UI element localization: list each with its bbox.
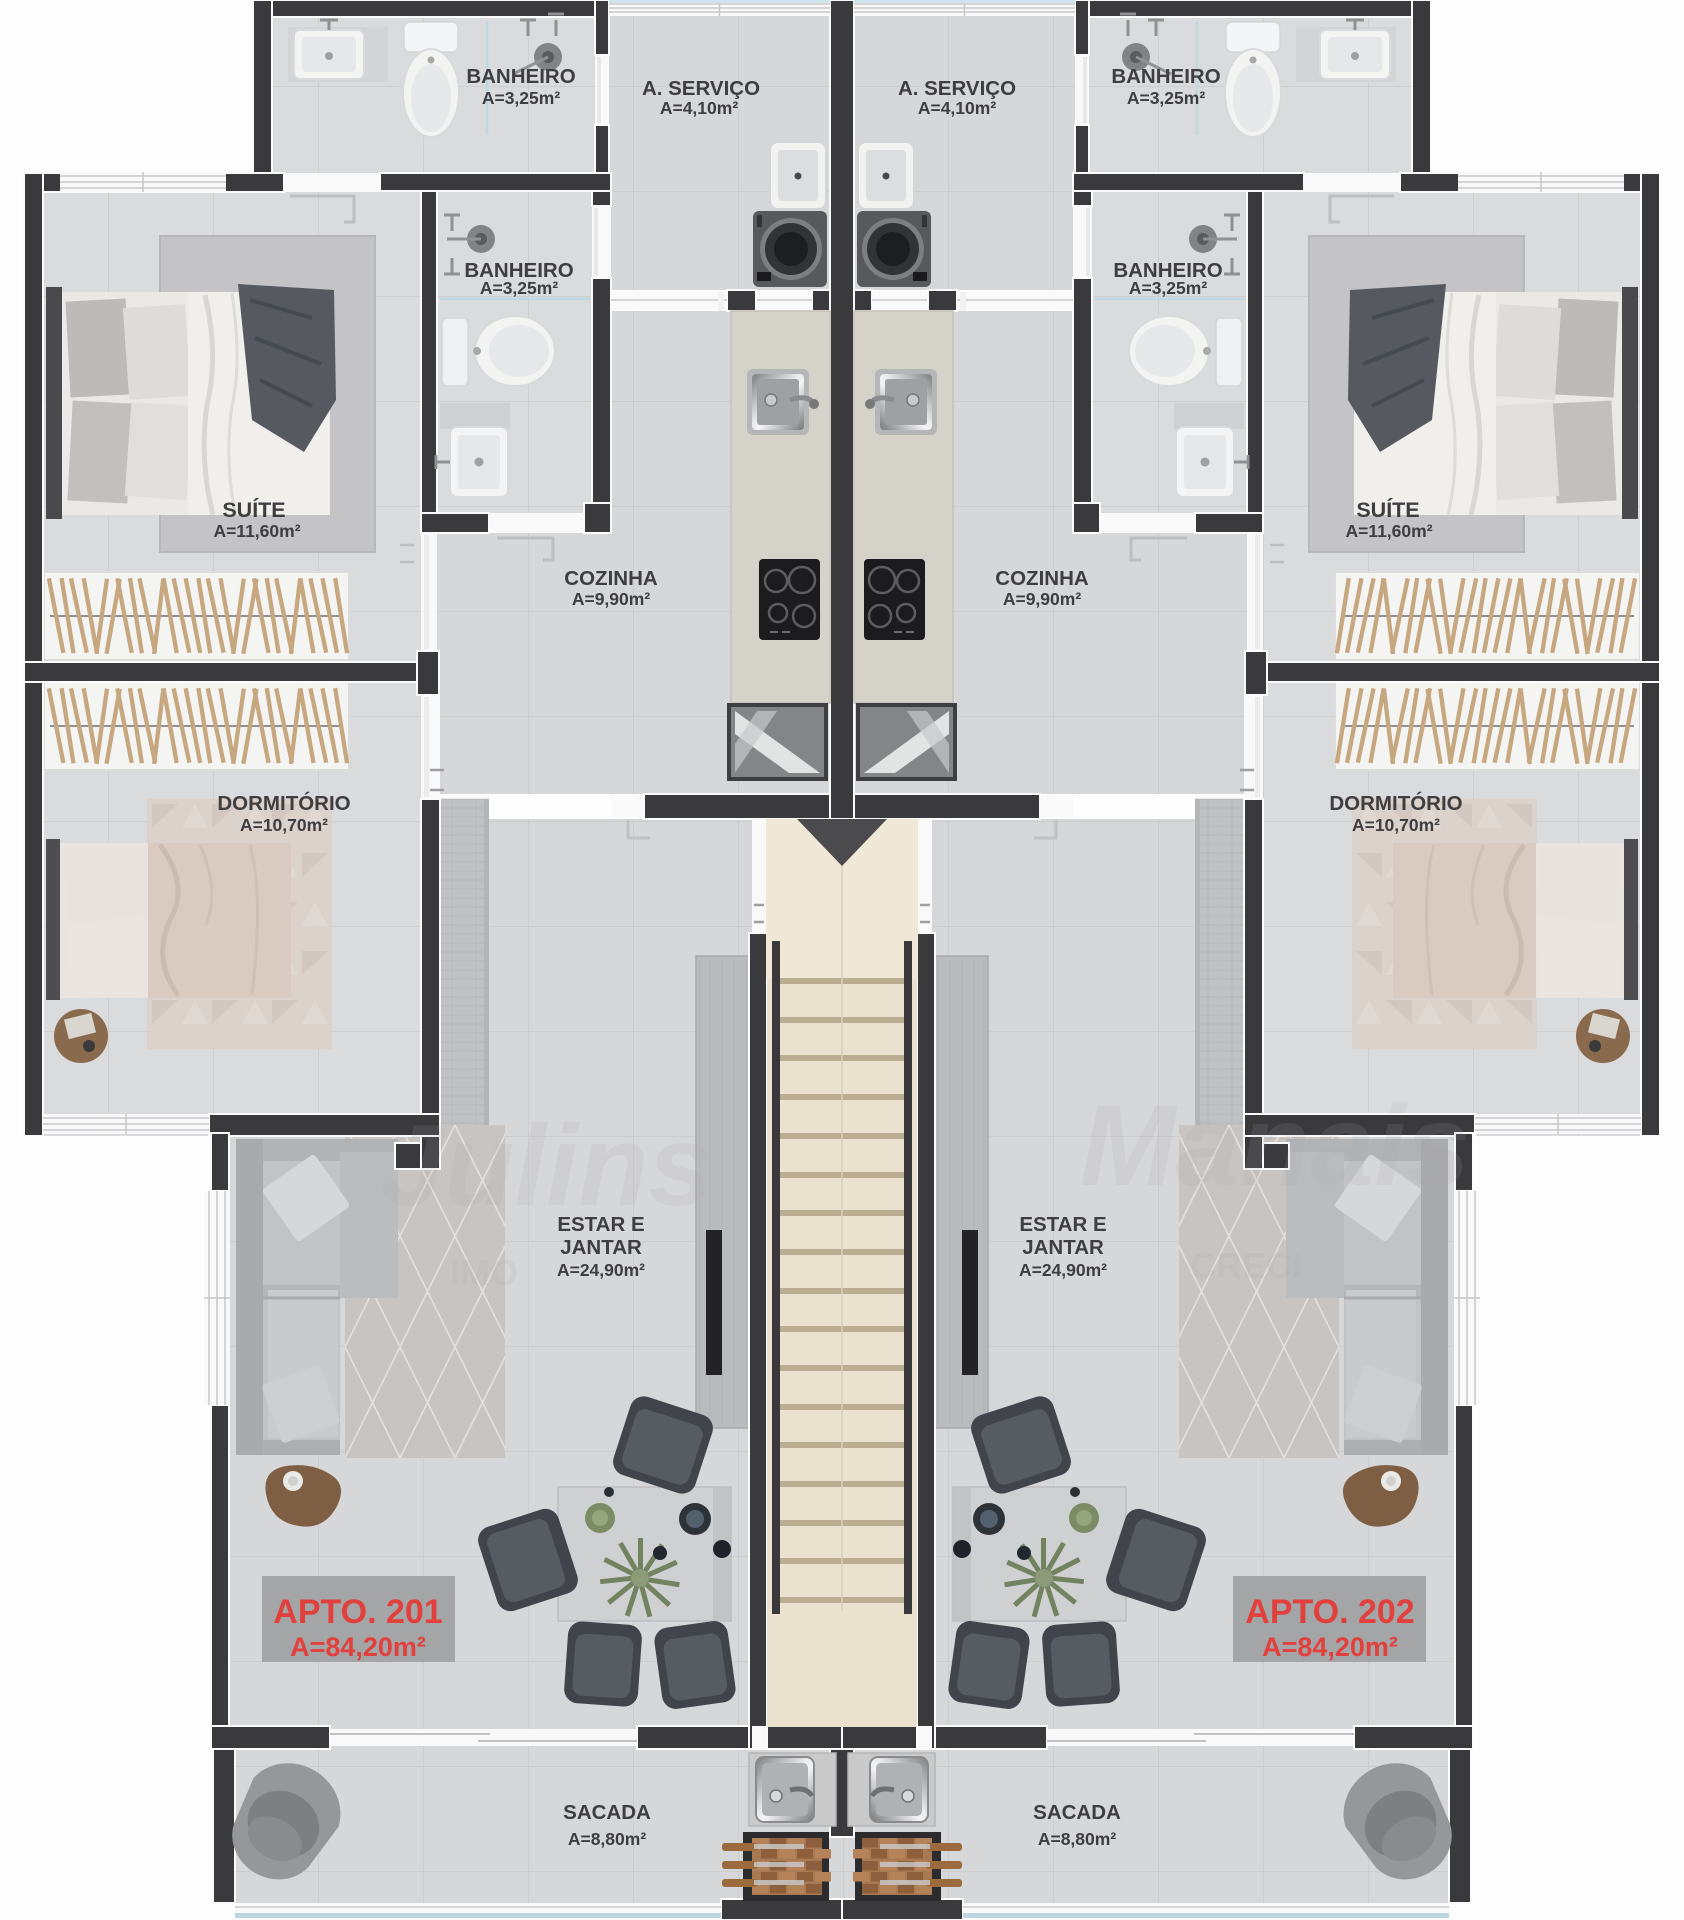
svg-text:A=3,25m²: A=3,25m² <box>1127 88 1205 108</box>
svg-text:A=9,90m²: A=9,90m² <box>1003 589 1081 609</box>
svg-text:A=10,70m²: A=10,70m² <box>1352 815 1440 835</box>
svg-text:A=84,20m²: A=84,20m² <box>290 1632 426 1662</box>
svg-text:A=84,20m²: A=84,20m² <box>1262 1632 1398 1662</box>
svg-text:DORMITÓRIO: DORMITÓRIO <box>1329 791 1462 815</box>
svg-text:Manais: Manais <box>1080 1082 1470 1210</box>
svg-text:CRECI: CRECI <box>1190 1245 1302 1286</box>
svg-text:A=8,80m²: A=8,80m² <box>568 1829 646 1849</box>
svg-text:SACADA: SACADA <box>563 1801 651 1824</box>
svg-text:BANHEIRO: BANHEIRO <box>466 65 575 88</box>
svg-text:A=8,80m²: A=8,80m² <box>1038 1829 1116 1849</box>
svg-text:A=3,25m²: A=3,25m² <box>1129 278 1207 298</box>
svg-text:A. SERVIÇO: A. SERVIÇO <box>642 77 760 100</box>
svg-text:SUÍTE: SUÍTE <box>222 497 285 522</box>
svg-text:COZINHA: COZINHA <box>564 567 658 590</box>
svg-text:A. SERVIÇO: A. SERVIÇO <box>898 77 1016 100</box>
svg-text:APTO. 202: APTO. 202 <box>1245 1593 1414 1631</box>
svg-text:A=4,10m²: A=4,10m² <box>660 98 738 118</box>
svg-text:BANHEIRO: BANHEIRO <box>1111 65 1220 88</box>
svg-text:COZINHA: COZINHA <box>995 567 1089 590</box>
svg-text:JANTAR: JANTAR <box>1022 1236 1104 1259</box>
svg-text:A=4,10m²: A=4,10m² <box>918 98 996 118</box>
svg-text:A=10,70m²: A=10,70m² <box>240 815 328 835</box>
svg-text:A=3,25m²: A=3,25m² <box>482 88 560 108</box>
svg-text:DORMITÓRIO: DORMITÓRIO <box>217 791 350 815</box>
svg-text:A=11,60m²: A=11,60m² <box>1345 521 1432 541</box>
svg-text:Julins: Julins <box>380 1102 712 1230</box>
svg-text:A=24,90m²: A=24,90m² <box>557 1260 645 1280</box>
svg-text:ESTAR E: ESTAR E <box>557 1213 644 1236</box>
svg-text:IMO: IMO <box>450 1252 518 1293</box>
svg-text:A=9,90m²: A=9,90m² <box>572 589 650 609</box>
svg-text:ESTAR E: ESTAR E <box>1019 1213 1106 1236</box>
svg-text:A=3,25m²: A=3,25m² <box>480 278 558 298</box>
svg-text:A=11,60m²: A=11,60m² <box>213 521 300 541</box>
svg-text:SUÍTE: SUÍTE <box>1356 497 1419 522</box>
svg-text:A=24,90m²: A=24,90m² <box>1019 1260 1107 1280</box>
svg-text:APTO. 201: APTO. 201 <box>273 1593 442 1631</box>
svg-text:JANTAR: JANTAR <box>560 1236 642 1259</box>
svg-text:SACADA: SACADA <box>1033 1801 1121 1824</box>
